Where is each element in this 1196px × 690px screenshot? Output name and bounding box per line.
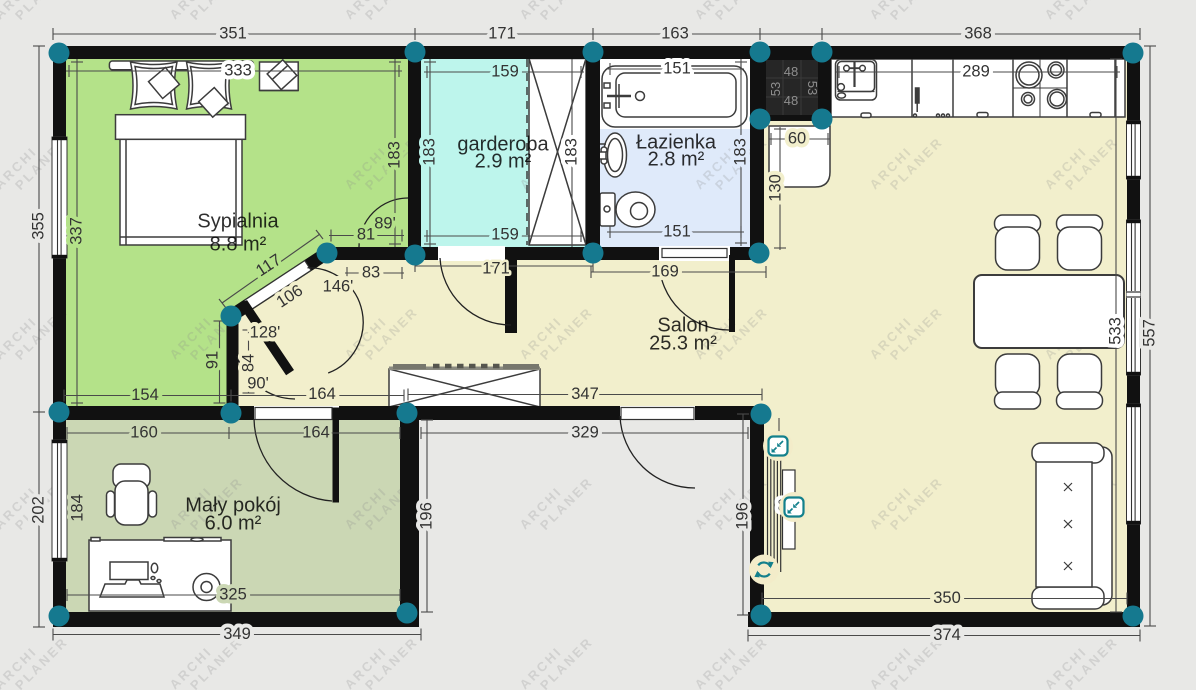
svg-text:351: 351: [219, 24, 247, 42]
svg-text:347: 347: [571, 385, 599, 403]
svg-text:164: 164: [302, 423, 330, 441]
svg-text:184: 184: [68, 494, 86, 522]
svg-text:325: 325: [219, 585, 247, 603]
svg-text:146': 146': [323, 277, 354, 295]
svg-text:6.0 m²: 6.0 m²: [205, 512, 262, 534]
svg-text:Sypialnia: Sypialnia: [197, 210, 279, 232]
svg-text:355: 355: [29, 212, 47, 240]
svg-text:374: 374: [933, 626, 961, 644]
svg-text:169: 169: [651, 262, 679, 280]
svg-text:164: 164: [308, 385, 336, 403]
svg-text:159: 159: [491, 62, 519, 80]
svg-text:128': 128': [250, 323, 281, 341]
svg-text:183: 183: [385, 141, 403, 169]
svg-text:81: 81: [357, 225, 375, 243]
svg-text:83: 83: [362, 263, 380, 281]
svg-text:90': 90': [247, 374, 269, 392]
svg-text:151: 151: [663, 59, 691, 77]
svg-text:25.3 m²: 25.3 m²: [649, 332, 717, 354]
svg-text:2.9 m²: 2.9 m²: [475, 150, 532, 172]
svg-text:159: 159: [491, 225, 519, 243]
svg-text:329: 329: [571, 423, 599, 441]
svg-text:154: 154: [131, 386, 159, 404]
svg-text:350: 350: [933, 589, 961, 607]
svg-text:202: 202: [29, 496, 47, 524]
svg-text:2.8 m²: 2.8 m²: [648, 148, 705, 170]
svg-text:53: 53: [805, 81, 820, 95]
svg-text:333: 333: [224, 61, 252, 79]
svg-text:84: 84: [239, 354, 257, 372]
svg-text:48: 48: [784, 93, 798, 108]
svg-text:183: 183: [562, 138, 580, 166]
svg-text:130: 130: [766, 174, 784, 202]
svg-text:171: 171: [488, 24, 516, 42]
svg-text:533: 533: [1106, 317, 1124, 345]
svg-text:53: 53: [768, 82, 783, 96]
svg-text:60: 60: [788, 129, 806, 147]
svg-text:171: 171: [482, 259, 510, 277]
svg-text:151: 151: [663, 222, 691, 240]
svg-text:91: 91: [203, 351, 221, 369]
svg-text:368: 368: [964, 24, 992, 42]
svg-text:337: 337: [67, 217, 85, 245]
svg-text:196: 196: [417, 502, 435, 530]
svg-text:183: 183: [731, 138, 749, 166]
svg-text:89': 89': [374, 214, 396, 232]
svg-text:163: 163: [661, 24, 689, 42]
svg-text:349: 349: [223, 625, 251, 643]
svg-text:8.8 m²: 8.8 m²: [210, 233, 267, 255]
svg-text:557: 557: [1140, 319, 1158, 347]
svg-text:160: 160: [130, 423, 158, 441]
svg-text:289: 289: [962, 62, 990, 80]
svg-text:183: 183: [420, 138, 438, 166]
svg-text:48: 48: [784, 64, 798, 79]
svg-text:196: 196: [733, 502, 751, 530]
